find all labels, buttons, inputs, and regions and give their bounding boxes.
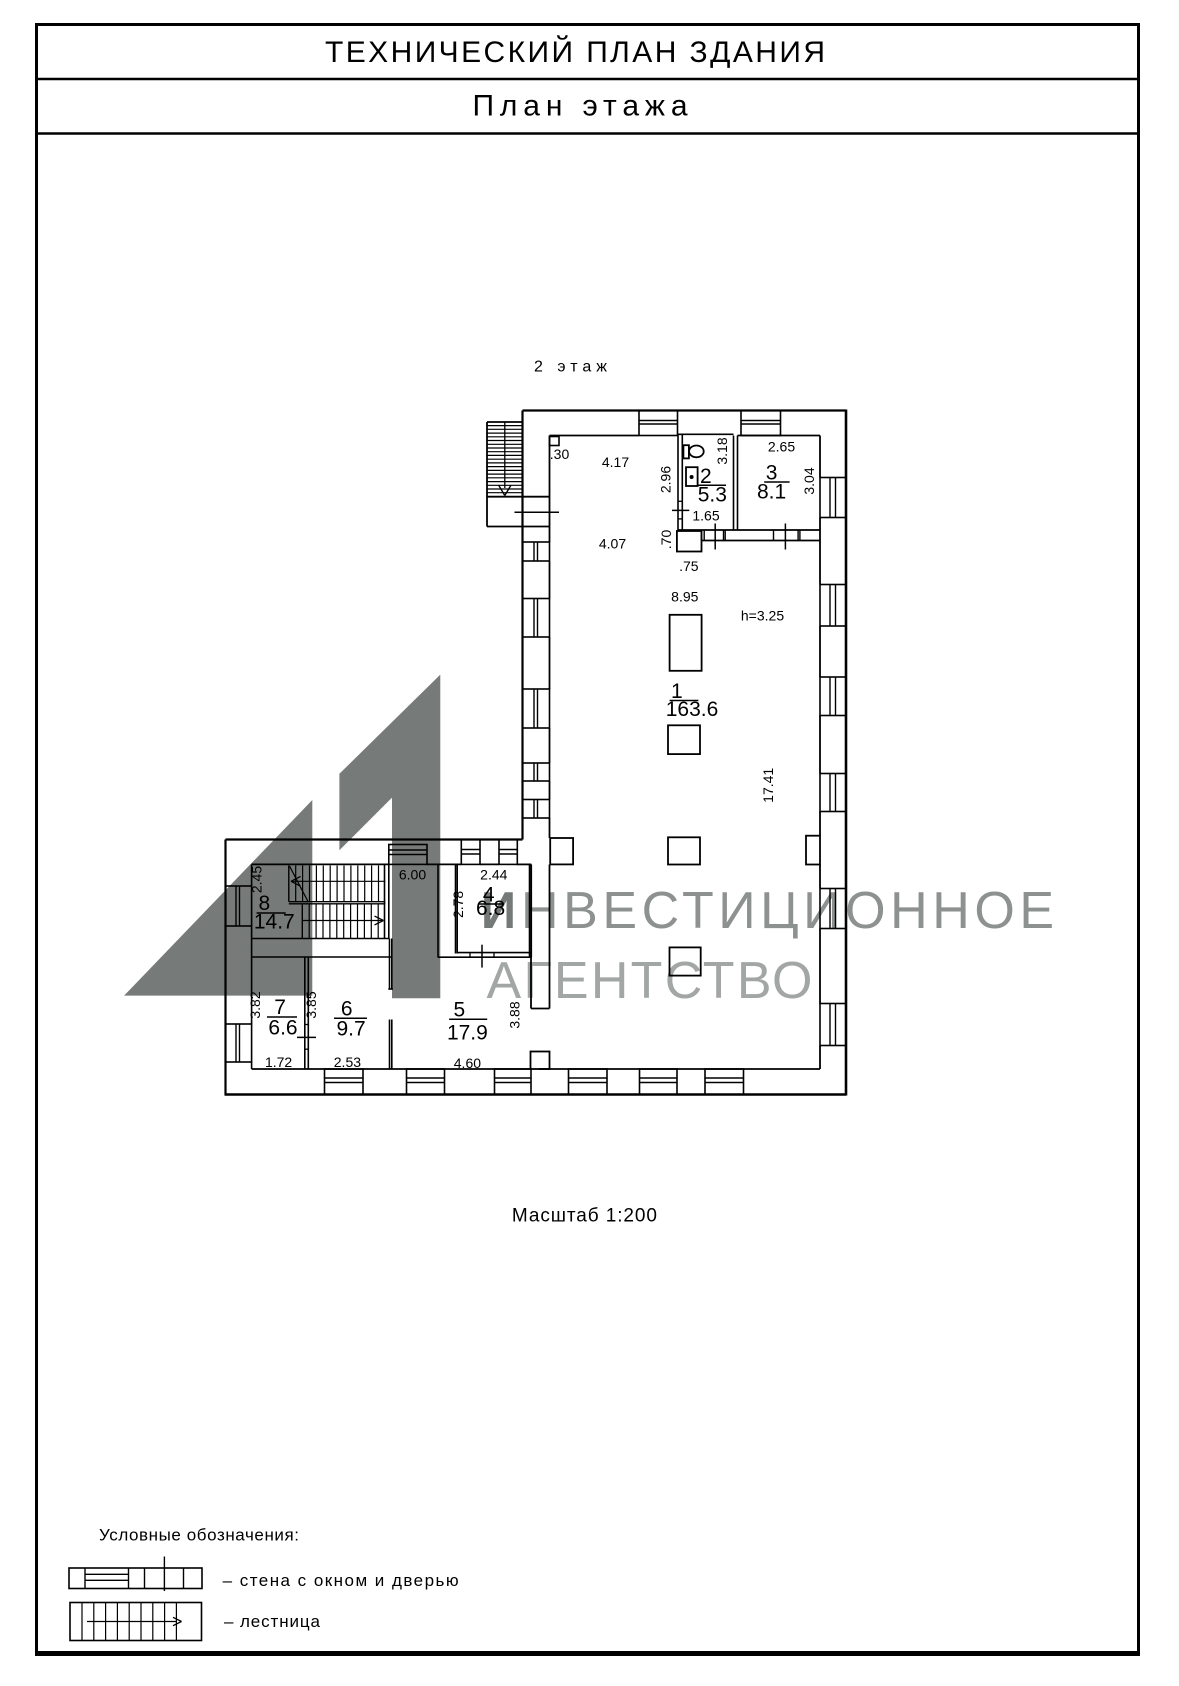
svg-text:Масштаб 1:200: Масштаб 1:200 <box>512 1206 657 1227</box>
svg-text:6.00: 6.00 <box>399 867 426 883</box>
svg-text:.70: .70 <box>658 530 674 550</box>
svg-text:1.72: 1.72 <box>265 1054 292 1070</box>
svg-text:2.45: 2.45 <box>249 866 265 893</box>
svg-text:3.04: 3.04 <box>801 467 817 494</box>
svg-text:3.88: 3.88 <box>507 1001 523 1028</box>
svg-text:4.17: 4.17 <box>602 454 629 470</box>
svg-text:17.41: 17.41 <box>760 768 776 803</box>
svg-text:6.8: 6.8 <box>476 897 505 920</box>
svg-text:163.6: 163.6 <box>666 698 719 721</box>
svg-text:2.44: 2.44 <box>480 867 507 883</box>
svg-text:АГЕНТСТВО: АГЕНТСТВО <box>487 952 813 1010</box>
svg-text:1.65: 1.65 <box>692 508 719 524</box>
svg-text:– лестница: – лестница <box>224 1612 321 1631</box>
svg-text:Условные обозначения:: Условные обозначения: <box>99 1526 299 1545</box>
svg-text:4.07: 4.07 <box>599 536 626 552</box>
svg-text:.75: .75 <box>679 558 699 574</box>
svg-text:17.9: 17.9 <box>447 1022 488 1045</box>
svg-text:14.7: 14.7 <box>254 911 295 934</box>
svg-text:9.7: 9.7 <box>336 1018 365 1041</box>
svg-text:3.85: 3.85 <box>303 991 319 1018</box>
svg-text:6.6: 6.6 <box>268 1017 297 1040</box>
svg-text:5.3: 5.3 <box>698 484 727 507</box>
svg-text:3.82: 3.82 <box>247 991 263 1018</box>
svg-text:2.53: 2.53 <box>334 1054 361 1070</box>
svg-text:4.60: 4.60 <box>454 1055 481 1071</box>
svg-text:3.18: 3.18 <box>714 437 730 464</box>
svg-text:.30: .30 <box>550 446 570 462</box>
svg-text:2.96: 2.96 <box>658 466 674 493</box>
svg-text:ТЕХНИЧЕСКИЙ ПЛАН ЗДАНИЯ: ТЕХНИЧЕСКИЙ ПЛАН ЗДАНИЯ <box>325 35 825 69</box>
svg-text:8.95: 8.95 <box>671 589 698 605</box>
svg-text:2.78: 2.78 <box>450 891 466 918</box>
svg-text:2.65: 2.65 <box>768 439 795 455</box>
svg-text:8.1: 8.1 <box>757 481 786 504</box>
svg-text:h=3.25: h=3.25 <box>741 608 784 624</box>
svg-text:5: 5 <box>454 999 466 1022</box>
